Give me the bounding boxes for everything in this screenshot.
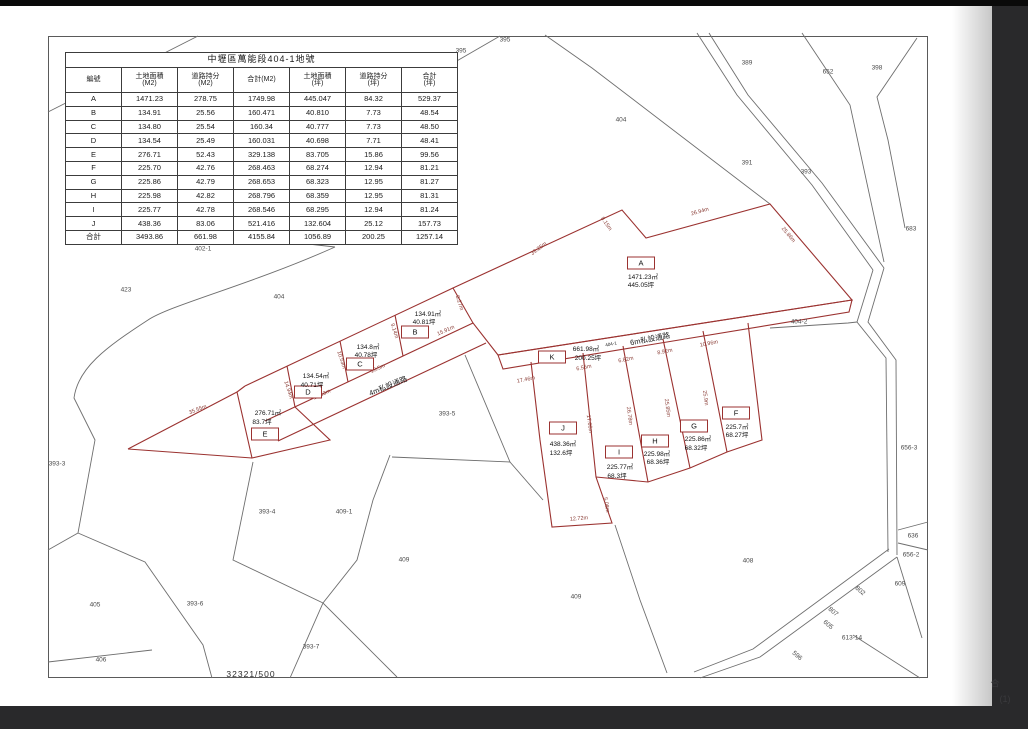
lot-number-label: 409 xyxy=(399,557,410,564)
edge-measurement-label: 12.72m xyxy=(570,515,589,523)
parcel-letter-box: K xyxy=(538,351,566,364)
edge-measurement-label: 17.46m xyxy=(516,375,535,384)
lot-number-label: 402-1 xyxy=(195,246,212,253)
edge-measurement-label: 15.91m xyxy=(436,325,455,338)
scanned-cadastral-document: 中壢區萬能段404-1地號 編號土地面積(M2)道路持分(M2)合計(M2)土地… xyxy=(0,0,1028,729)
lot-number-label: 409-1 xyxy=(336,509,353,516)
edge-measurement-label: 25.86m xyxy=(780,226,796,244)
lot-number-label: 393 xyxy=(801,169,812,176)
parcel-letter-box: C xyxy=(346,358,374,371)
edge-measurement-label: 35.55m xyxy=(188,404,207,416)
lot-number-label: 656-3 xyxy=(901,445,918,452)
road-name-label: 404-1 xyxy=(605,340,617,347)
edge-measurement-label: 39.25m xyxy=(530,241,548,257)
edge-measurement-label: 25.9m xyxy=(701,390,709,406)
lot-number-label: 609 xyxy=(895,581,906,588)
edge-measurement-label: 26.78m xyxy=(625,406,633,425)
lot-number-label: 393-4 xyxy=(259,509,276,516)
lot-number-label: 423 xyxy=(121,287,132,294)
edge-measurement-label: 6.82m xyxy=(618,356,634,365)
parcel-letter-box: F xyxy=(722,407,750,420)
lot-number-label: 613-14 xyxy=(842,635,862,642)
edge-measurement-label: 8.92m xyxy=(657,348,673,357)
edge-measurement-label: 25.85m xyxy=(663,398,671,417)
background-ghost-text: (1) xyxy=(1000,694,1011,704)
lot-number-label: 404-2 xyxy=(791,319,808,326)
parcel-area-ping: 68.27坪 xyxy=(726,429,749,439)
lot-number-label: 395 xyxy=(500,37,511,44)
edge-measurement-label: 9.14m xyxy=(389,323,399,339)
lot-number-label: 393-5 xyxy=(439,411,456,418)
edge-measurement-label: 5.08m xyxy=(602,497,611,513)
lot-number-label: 409 xyxy=(571,594,582,601)
lot-number-label: 393-7 xyxy=(303,644,320,651)
parcel-letter-box: H xyxy=(641,435,669,448)
edge-measurement-label: 8.27m xyxy=(454,295,464,311)
lot-number-label: 393-3 xyxy=(49,461,66,468)
lot-number-label: 405 xyxy=(90,602,101,609)
lot-number-label: 596 xyxy=(791,650,804,662)
parcel-area-ping: 68.3坪 xyxy=(607,470,626,480)
parcel-letter-box: B xyxy=(401,326,429,339)
parcel-letter-box: A xyxy=(627,257,655,270)
lot-number-label: 395 xyxy=(456,48,467,55)
edge-measurement-label: 10.96m xyxy=(699,339,718,348)
parcel-area-ping: 68.32坪 xyxy=(685,442,708,452)
parcel-area-ping: 68.36坪 xyxy=(647,456,670,466)
parcel-letter-box: J xyxy=(549,422,577,435)
parcel-area-ping: 40.71坪 xyxy=(301,379,324,389)
map-label-overlay: 32321/500 395395389652398404391393683402… xyxy=(0,0,1028,729)
parcel-letter-box: G xyxy=(680,420,708,433)
parcel-area-ping: 40.81坪 xyxy=(413,316,436,326)
edge-measurement-label: 26.94m xyxy=(690,207,709,218)
lot-number-label: 398 xyxy=(872,65,883,72)
parcel-area-ping: 40.78坪 xyxy=(355,349,378,359)
lot-number-label: 656-2 xyxy=(903,552,920,559)
lot-number-label: 393-6 xyxy=(187,601,204,608)
road-name-label: 6m私設通路 xyxy=(629,330,671,349)
road-name-label: 4m私設通路 xyxy=(367,373,409,398)
lot-number-label: 404 xyxy=(274,294,285,301)
lot-number-label: 389 xyxy=(742,60,753,67)
edge-measurement-label: 14.94m xyxy=(282,380,293,399)
edge-measurement-label: 8.15m xyxy=(599,216,613,232)
edge-measurement-label: 17.66m xyxy=(585,414,593,433)
parcel-area-ping: 200.25坪 xyxy=(575,352,601,362)
lot-number-label: 807 xyxy=(827,606,840,618)
parcel-letter-box: I xyxy=(605,446,633,459)
map-scale-number: 32321/500 xyxy=(226,669,275,679)
lot-number-label: 802 xyxy=(854,585,867,597)
lot-number-label: 652 xyxy=(823,69,834,76)
lot-number-label: 683 xyxy=(906,226,917,233)
parcel-area-ping: 83.7坪 xyxy=(252,416,271,426)
edge-measurement-label: 6.55m xyxy=(576,364,592,373)
lot-number-label: 406 xyxy=(96,657,107,664)
background-ghost-text: 合 xyxy=(990,677,999,690)
parcel-area-ping: 445.05坪 xyxy=(628,279,654,289)
lot-number-label: 605 xyxy=(822,619,835,631)
lot-number-label: 404 xyxy=(616,117,627,124)
lot-number-label: 636 xyxy=(908,533,919,540)
parcel-letter-box: E xyxy=(251,428,279,441)
parcel-area-ping: 132.6坪 xyxy=(550,447,573,457)
lot-number-label: 408 xyxy=(743,558,754,565)
edge-measurement-label: 10.53m xyxy=(335,350,346,369)
lot-number-label: 391 xyxy=(742,160,753,167)
